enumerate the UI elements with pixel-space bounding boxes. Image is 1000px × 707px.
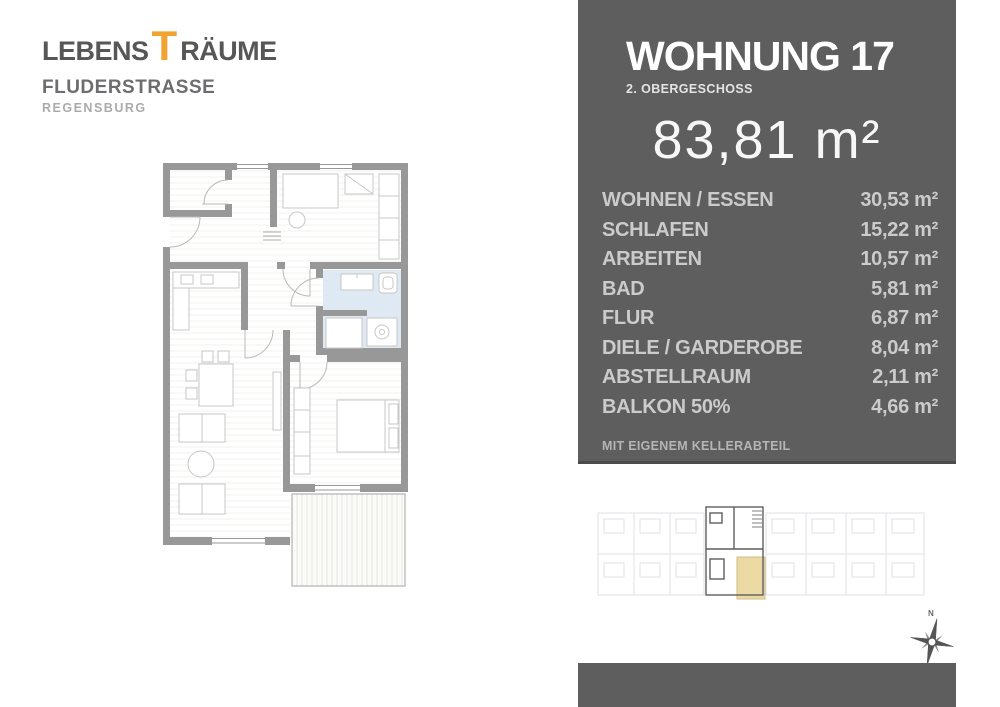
- floor-level: 2. OBERGESCHOSS: [626, 82, 938, 96]
- room-row: DIELE / GARDEROBE8,04 m²: [602, 334, 938, 364]
- room-row: ABSTELLRAUM2,11 m²: [602, 363, 938, 393]
- balcony-floor: [292, 494, 405, 586]
- room-row: SCHLAFEN15,22 m²: [602, 216, 938, 246]
- logo-city: REGENSBURG: [42, 101, 277, 115]
- company-logo: LEBENSTRÄUME FLUDERSTRASSE REGENSBURG: [42, 26, 277, 115]
- room-label: ARBEITEN: [602, 245, 702, 275]
- compass-icon: N: [900, 606, 964, 670]
- apartment-title: WOHNUNG 17: [626, 34, 938, 78]
- logo-wordmark: LEBENSTRÄUME: [42, 26, 277, 76]
- total-area: 83,81 m²: [578, 110, 956, 170]
- logo-text-left: LEBENS: [42, 36, 149, 66]
- building-overview-plan: [596, 499, 926, 607]
- room-row: ARBEITEN10,57 m²: [602, 245, 938, 275]
- room-list: WOHNEN / ESSEN30,53 m² SCHLAFEN15,22 m² …: [602, 186, 938, 422]
- highlighted-unit: [706, 507, 765, 599]
- room-area: 5,81 m²: [871, 275, 938, 305]
- room-area: 15,22 m²: [860, 216, 938, 246]
- room-label: DIELE / GARDEROBE: [602, 334, 802, 364]
- logo-project-name: FLUDERSTRASSE: [42, 77, 277, 99]
- room-label: FLUR: [602, 304, 654, 334]
- room-label: BAD: [602, 275, 644, 305]
- logo-accent-t: T: [152, 22, 178, 69]
- apartment-floor-plan: [155, 148, 413, 596]
- room-area: 10,57 m²: [860, 245, 938, 275]
- cellar-note: MIT EIGENEM KELLERABTEIL: [602, 439, 790, 453]
- unit-balcony-marker: [737, 557, 765, 599]
- room-row: BALKON 50%4,66 m²: [602, 393, 938, 423]
- compass-rose: [905, 614, 958, 670]
- room-area: 2,11 m²: [872, 363, 938, 393]
- room-area: 6,87 m²: [871, 304, 938, 334]
- apartment-info-panel: WOHNUNG 17 2. OBERGESCHOSS 83,81 m² WOHN…: [578, 0, 956, 464]
- room-label: BALKON 50%: [602, 393, 730, 423]
- room-row: WOHNEN / ESSEN30,53 m²: [602, 186, 938, 216]
- compass-north-label: N: [928, 609, 934, 618]
- room-row: FLUR6,87 m²: [602, 304, 938, 334]
- room-area: 4,66 m²: [871, 393, 938, 423]
- logo-text-right: RÄUME: [180, 36, 277, 66]
- room-label: ABSTELLRAUM: [602, 363, 751, 393]
- bottom-accent-bar: [578, 663, 956, 707]
- room-label: SCHLAFEN: [602, 216, 709, 246]
- room-row: BAD5,81 m²: [602, 275, 938, 305]
- panel-header: WOHNUNG 17 2. OBERGESCHOSS: [626, 34, 938, 96]
- room-area: 30,53 m²: [860, 186, 938, 216]
- room-label: WOHNEN / ESSEN: [602, 186, 773, 216]
- room-area: 8,04 m²: [871, 334, 938, 364]
